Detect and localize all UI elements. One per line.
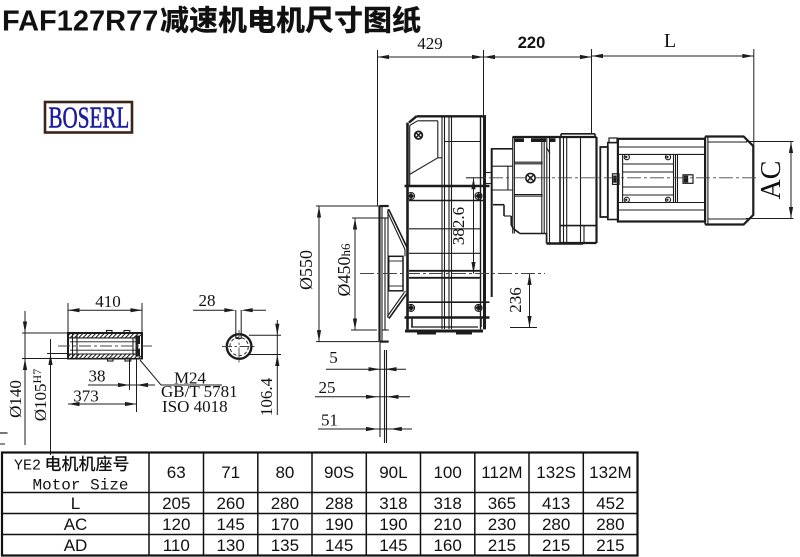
svg-text:280: 280 [542, 515, 570, 534]
svg-text:145: 145 [325, 536, 353, 555]
svg-text:205: 205 [162, 494, 190, 513]
svg-text:63: 63 [167, 463, 186, 482]
svg-text:170: 170 [271, 515, 299, 534]
svg-text:215: 215 [542, 536, 570, 555]
svg-text:230: 230 [488, 515, 516, 534]
svg-text:130: 130 [216, 536, 244, 555]
svg-text:5: 5 [329, 348, 338, 367]
svg-text:38: 38 [89, 367, 106, 386]
svg-text:51: 51 [321, 411, 338, 430]
svg-text:190: 190 [325, 515, 353, 534]
svg-text:106.4: 106.4 [257, 377, 276, 416]
svg-text:429: 429 [417, 34, 443, 53]
svg-text:120: 120 [162, 515, 190, 534]
svg-text:AC: AC [64, 515, 88, 534]
svg-text:260: 260 [216, 494, 244, 513]
svg-text:90L: 90L [379, 463, 407, 482]
svg-text:413: 413 [542, 494, 570, 513]
svg-text:382.6: 382.6 [449, 207, 468, 245]
svg-text:Ø140: Ø140 [6, 380, 25, 418]
svg-text:80: 80 [275, 463, 294, 482]
svg-text:132S: 132S [536, 463, 576, 482]
svg-text:AD: AD [64, 536, 88, 555]
svg-text:BOSERL: BOSERL [49, 99, 130, 134]
svg-text:215: 215 [488, 536, 516, 555]
svg-text:ISO 4018: ISO 4018 [162, 397, 228, 416]
svg-text:112M: 112M [481, 463, 522, 482]
svg-text:365: 365 [488, 494, 516, 513]
svg-text:410: 410 [95, 292, 121, 311]
svg-text:90S: 90S [324, 463, 354, 482]
svg-text:FAF127R77: FAF127R77 [2, 6, 158, 38]
svg-text:AC: AC [756, 161, 787, 200]
svg-text:452: 452 [596, 494, 624, 513]
svg-text:100: 100 [433, 463, 461, 482]
svg-text:145: 145 [379, 536, 407, 555]
svg-text:318: 318 [433, 494, 461, 513]
svg-text:71: 71 [221, 463, 240, 482]
svg-text:L: L [71, 494, 80, 513]
svg-text:28: 28 [199, 291, 216, 310]
svg-text:145: 145 [216, 515, 244, 534]
svg-text:110: 110 [163, 536, 190, 555]
svg-text:288: 288 [325, 494, 353, 513]
svg-text:Ø550: Ø550 [296, 250, 316, 290]
svg-text:318: 318 [379, 494, 407, 513]
svg-text:373: 373 [73, 387, 99, 406]
svg-text:L: L [664, 30, 676, 52]
svg-text:160: 160 [433, 536, 461, 555]
svg-text:YE2: YE2 [14, 458, 41, 475]
svg-text:135: 135 [271, 536, 299, 555]
svg-text:236: 236 [506, 287, 525, 313]
svg-text:280: 280 [271, 494, 299, 513]
svg-text:132M: 132M [589, 463, 632, 482]
svg-text:210: 210 [433, 515, 461, 534]
svg-text:190: 190 [379, 515, 407, 534]
svg-text:220: 220 [518, 34, 546, 52]
svg-text:Motor Size: Motor Size [33, 477, 129, 495]
svg-text:215: 215 [596, 536, 624, 555]
svg-text:280: 280 [596, 515, 624, 534]
svg-text:25: 25 [319, 378, 336, 397]
